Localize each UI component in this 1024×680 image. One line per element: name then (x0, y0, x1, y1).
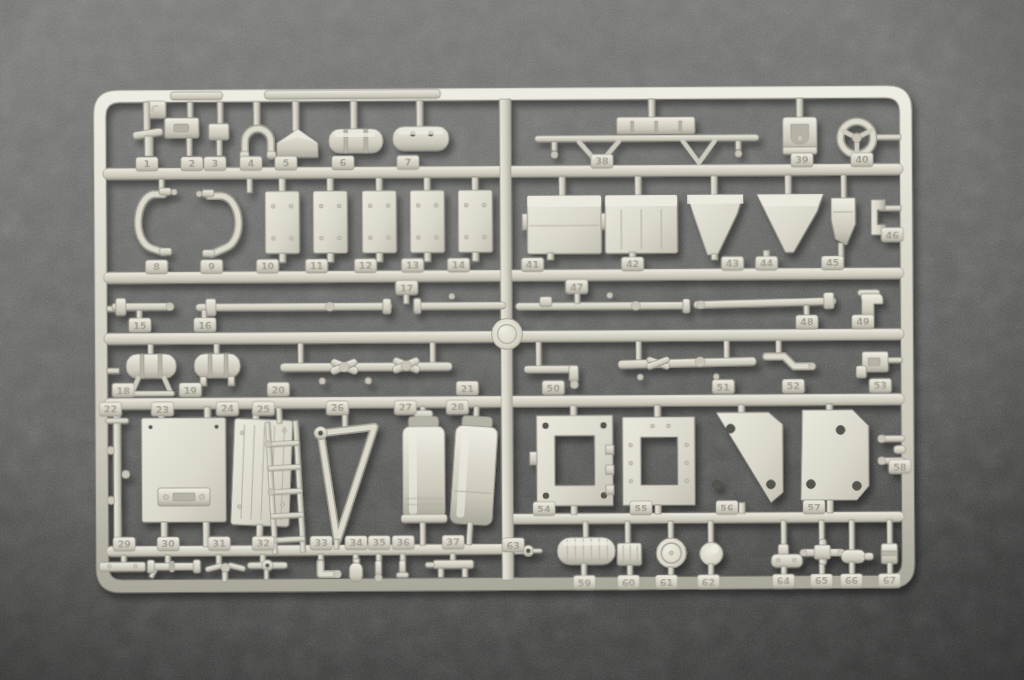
svg-text:26: 26 (331, 402, 345, 413)
part-tag-54: 54 (533, 502, 555, 516)
part-tag-51: 51 (712, 380, 734, 394)
svg-text:8: 8 (153, 262, 160, 273)
svg-text:44: 44 (760, 258, 774, 269)
part-tag-4: 4 (240, 156, 262, 170)
svg-text:38: 38 (595, 156, 609, 167)
svg-text:54: 54 (537, 503, 551, 514)
svg-text:66: 66 (845, 575, 859, 586)
svg-text:45: 45 (826, 257, 839, 268)
part-tag-39: 39 (791, 153, 813, 167)
sprue-photo-canvas: C (0, 0, 1024, 680)
part-tag-61: 61 (655, 575, 677, 589)
hanger-ball (607, 292, 613, 298)
part-tag-49: 49 (852, 315, 874, 329)
center-disc-glint (500, 327, 506, 333)
part-tag-33: 33 (310, 536, 332, 550)
part-tag-19: 19 (179, 383, 201, 397)
part-tag-53: 53 (869, 379, 891, 393)
part-tag-13: 13 (402, 258, 424, 272)
part-tag-2: 2 (181, 157, 203, 171)
part-tag-60: 60 (617, 575, 639, 589)
stub-left-edge-2 (107, 368, 119, 373)
part-tag-29: 29 (113, 537, 135, 551)
svg-text:56: 56 (720, 502, 734, 513)
part-tag-17: 17 (396, 281, 418, 295)
svg-text:65: 65 (815, 576, 828, 587)
part-tag-45: 45 (821, 256, 843, 270)
svg-text:37: 37 (447, 537, 460, 548)
svg-text:33: 33 (315, 538, 328, 549)
part-tag-18: 18 (112, 383, 134, 397)
part-tag-14: 14 (448, 258, 470, 272)
part-tag-67: 67 (878, 574, 900, 588)
part-tag-64: 64 (772, 574, 794, 588)
svg-text:28: 28 (451, 402, 465, 413)
svg-text:7: 7 (405, 157, 412, 168)
svg-text:17: 17 (400, 282, 413, 293)
part-tag-55: 55 (630, 501, 652, 515)
part-tag-6: 6 (332, 156, 354, 170)
svg-text:5: 5 (283, 158, 290, 169)
part-tag-40: 40 (851, 153, 873, 167)
svg-text:43: 43 (726, 258, 739, 269)
svg-text:6: 6 (340, 157, 347, 168)
svg-text:13: 13 (406, 260, 419, 271)
part-tag-21: 21 (456, 381, 478, 395)
svg-text:48: 48 (800, 317, 814, 328)
svg-text:31: 31 (213, 538, 226, 549)
svg-text:20: 20 (272, 384, 286, 395)
svg-text:24: 24 (221, 403, 235, 414)
part-tag-58: 58 (889, 460, 911, 474)
svg-text:58: 58 (893, 461, 907, 472)
svg-text:29: 29 (118, 539, 131, 550)
part-tag-66: 66 (840, 574, 862, 588)
photo-model-kit-sprue: C (0, 0, 1024, 680)
hanger-ball (449, 293, 455, 299)
part-tag-8: 8 (146, 260, 168, 274)
svg-text:18: 18 (117, 385, 131, 396)
part-tag-25: 25 (252, 401, 274, 415)
sprue-c: C (93, 86, 914, 593)
part-tag-23: 23 (151, 402, 173, 416)
svg-text:32: 32 (257, 538, 270, 549)
svg-text:3: 3 (212, 158, 219, 169)
svg-text:36: 36 (397, 537, 411, 548)
svg-text:11: 11 (310, 261, 323, 272)
svg-text:55: 55 (634, 503, 647, 514)
part-tag-5: 5 (275, 156, 297, 170)
part-tag-26: 26 (326, 401, 348, 415)
part-tag-65: 65 (810, 574, 832, 588)
svg-text:12: 12 (359, 260, 372, 271)
svg-text:41: 41 (526, 259, 539, 270)
part-tag-41: 41 (521, 258, 543, 272)
part-tag-32: 32 (252, 536, 274, 550)
part-tag-43: 43 (721, 257, 743, 271)
mold-strip-small (170, 92, 222, 100)
part-tag-22: 22 (99, 402, 121, 416)
svg-text:40: 40 (855, 154, 869, 165)
part-tag-57: 57 (803, 500, 825, 514)
part-tag-11: 11 (306, 259, 328, 273)
part-tag-3: 3 (204, 157, 226, 171)
svg-text:63: 63 (507, 539, 520, 550)
svg-text:57: 57 (807, 502, 820, 513)
svg-text:22: 22 (104, 404, 117, 415)
part-tag-30: 30 (157, 537, 179, 551)
svg-text:23: 23 (156, 404, 169, 415)
part-tag-10: 10 (257, 259, 279, 273)
svg-text:61: 61 (660, 576, 673, 587)
svg-text:27: 27 (399, 402, 412, 413)
svg-text:52: 52 (787, 381, 800, 392)
part-tag-59: 59 (573, 575, 595, 589)
svg-text:47: 47 (570, 281, 583, 292)
svg-text:16: 16 (198, 319, 212, 330)
svg-text:14: 14 (452, 260, 466, 271)
rail-6-right (506, 512, 904, 524)
svg-text:35: 35 (373, 537, 386, 548)
part-57-panel-plate (800, 404, 869, 513)
svg-text:59: 59 (578, 577, 591, 588)
svg-text:15: 15 (133, 320, 146, 331)
svg-text:9: 9 (208, 261, 215, 272)
part-tag-48: 48 (796, 315, 818, 329)
part-tag-31: 31 (208, 537, 230, 551)
part-tag-62: 62 (697, 575, 719, 589)
part-tag-24: 24 (216, 402, 238, 416)
svg-text:34: 34 (350, 537, 364, 548)
part-tag-36: 36 (392, 536, 414, 550)
svg-text:50: 50 (547, 382, 561, 393)
part-tag-42: 42 (621, 257, 643, 271)
part-tag-52: 52 (782, 379, 804, 393)
svg-text:64: 64 (777, 576, 791, 587)
svg-text:2: 2 (189, 158, 196, 169)
part-center-disc (491, 318, 522, 349)
part-tag-50: 50 (542, 381, 564, 395)
svg-text:21: 21 (461, 383, 474, 394)
svg-text:67: 67 (883, 575, 896, 586)
sprue-letter: C (151, 103, 160, 117)
part-tag-37: 37 (442, 535, 464, 549)
part-tag-15: 15 (129, 318, 151, 332)
svg-text:30: 30 (162, 539, 176, 550)
part-tag-34: 34 (345, 536, 367, 550)
mold-strip-long (264, 89, 440, 99)
svg-text:42: 42 (626, 259, 639, 270)
svg-text:51: 51 (717, 381, 730, 392)
svg-text:53: 53 (874, 380, 887, 391)
part-tag-9: 9 (201, 260, 223, 274)
svg-text:60: 60 (622, 577, 636, 588)
part-tag-27: 27 (394, 401, 416, 415)
svg-text:39: 39 (795, 155, 808, 166)
part-tag-20: 20 (267, 382, 289, 396)
part-tag-28: 28 (446, 400, 468, 414)
part-tag-35: 35 (368, 536, 390, 550)
part-tag-63: 63 (502, 538, 524, 552)
part-tag-56: 56 (716, 501, 738, 515)
svg-text:1: 1 (144, 159, 151, 170)
part-tag-12: 12 (355, 259, 377, 273)
svg-text:4: 4 (248, 158, 255, 169)
part-tag-16: 16 (194, 318, 216, 332)
part-tag-46: 46 (881, 228, 903, 242)
part-tag-47: 47 (566, 279, 588, 293)
part-tag-38: 38 (591, 154, 613, 168)
svg-text:19: 19 (184, 384, 197, 395)
svg-text:62: 62 (702, 576, 715, 587)
svg-text:49: 49 (856, 316, 869, 327)
svg-text:46: 46 (886, 229, 900, 240)
part-tag-7: 7 (397, 156, 419, 170)
svg-text:10: 10 (261, 261, 275, 272)
svg-text:25: 25 (257, 403, 270, 414)
part-tag-44: 44 (755, 256, 777, 270)
part-tag-1: 1 (136, 157, 158, 171)
